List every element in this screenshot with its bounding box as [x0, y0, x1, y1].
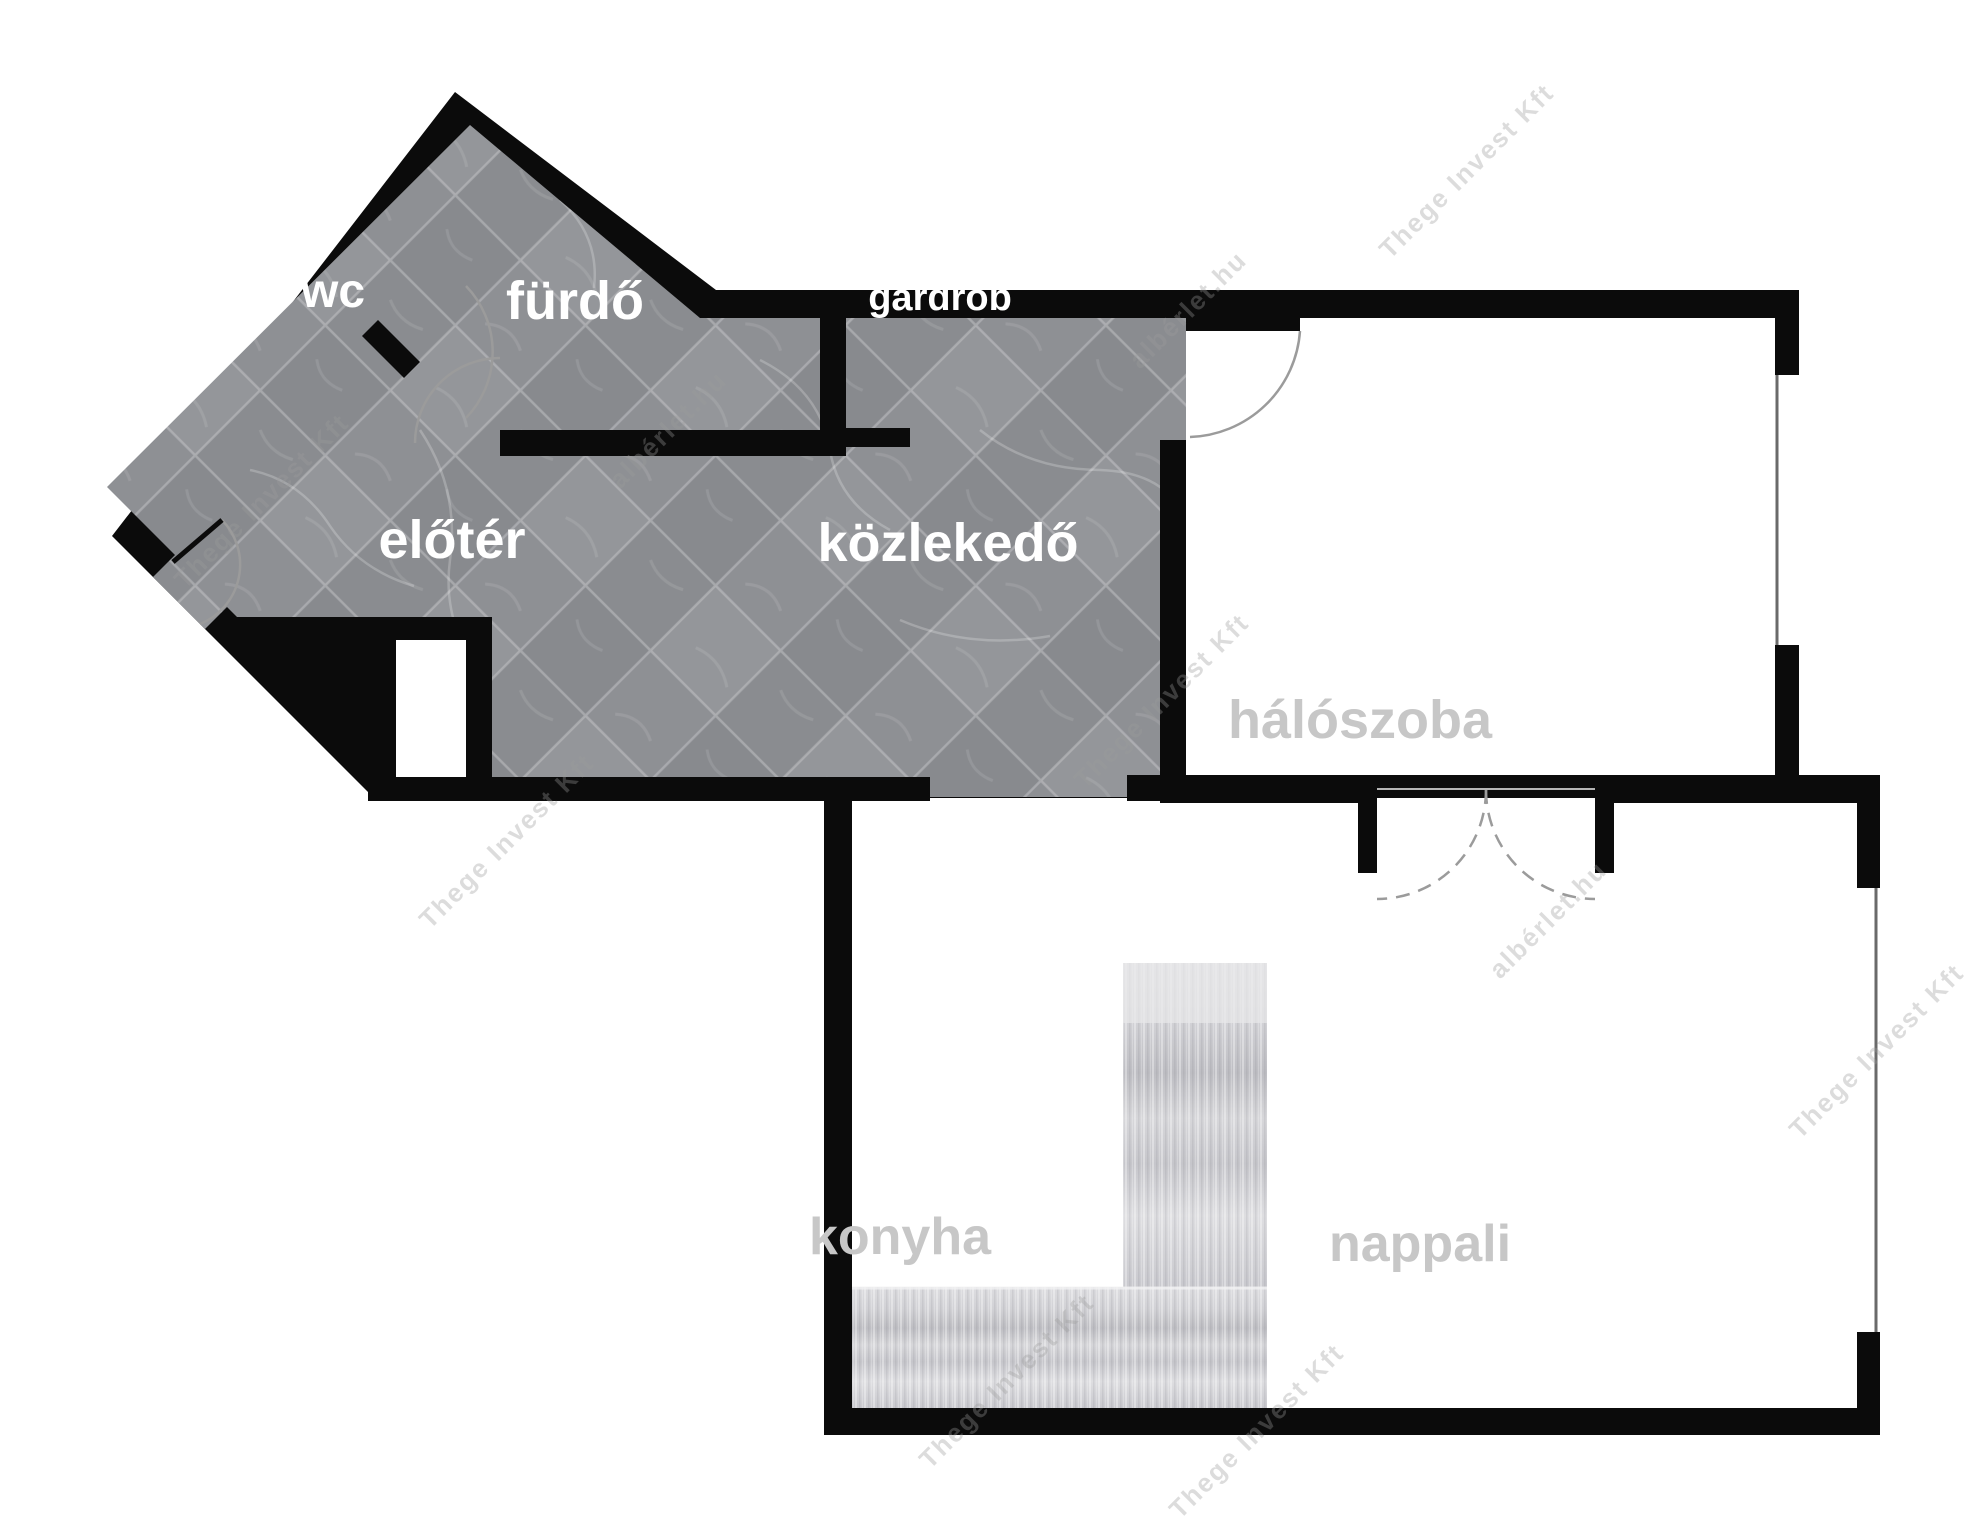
label-kozlekedo: közlekedő	[817, 513, 1078, 573]
label-furdo: fürdő	[506, 271, 644, 331]
label-eloter: előtér	[378, 510, 525, 570]
shaft-box	[396, 640, 466, 777]
label-haloszoba: hálószoba	[1228, 690, 1493, 750]
floor-plan: wc fürdő gardrób előtér közlekedő hálósz…	[0, 0, 1980, 1535]
watermark-brand: Thege Invest Kft	[1373, 77, 1560, 264]
label-wc: wc	[300, 265, 365, 318]
living-right-window	[1853, 888, 1883, 1332]
label-nappali: nappali	[1329, 1215, 1511, 1273]
label-konyha: konyha	[809, 1208, 992, 1266]
kitchen-counter-vertical	[1123, 963, 1267, 1287]
label-gardrob: gardrób	[868, 277, 1012, 319]
